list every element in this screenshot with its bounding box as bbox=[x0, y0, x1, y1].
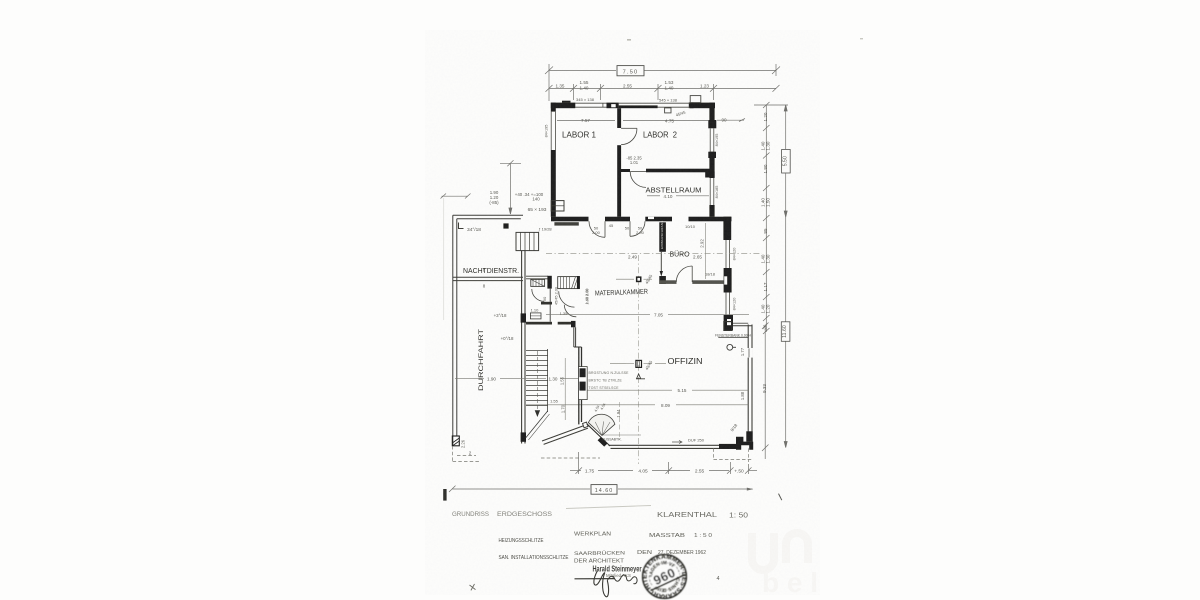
svg-text:ERDGESCHOSS: ERDGESCHOSS bbox=[497, 511, 552, 518]
svg-text:SAARBRÜCKEN: SAARBRÜCKEN bbox=[574, 549, 626, 557]
svg-text:KLARENTHAL: KLARENTHAL bbox=[657, 510, 717, 519]
svg-text:GRUNDRISS: GRUNDRISS bbox=[452, 511, 489, 518]
svg-text:1 : 5 0: 1 : 5 0 bbox=[694, 533, 712, 539]
svg-text:HEIZUNGSSCHLITZE: HEIZUNGSSCHLITZE bbox=[499, 538, 544, 544]
svg-text:DEN: DEN bbox=[637, 550, 653, 556]
svg-text:WERKPLAN: WERKPLAN bbox=[574, 532, 611, 538]
svg-text:MASSTAB: MASSTAB bbox=[649, 533, 685, 539]
svg-text:1: 50: 1: 50 bbox=[729, 511, 748, 520]
svg-text:4: 4 bbox=[717, 576, 720, 582]
svg-text:SAN. INSTALLATIONSSCHLITZE: SAN. INSTALLATIONSSCHLITZE bbox=[499, 555, 569, 561]
